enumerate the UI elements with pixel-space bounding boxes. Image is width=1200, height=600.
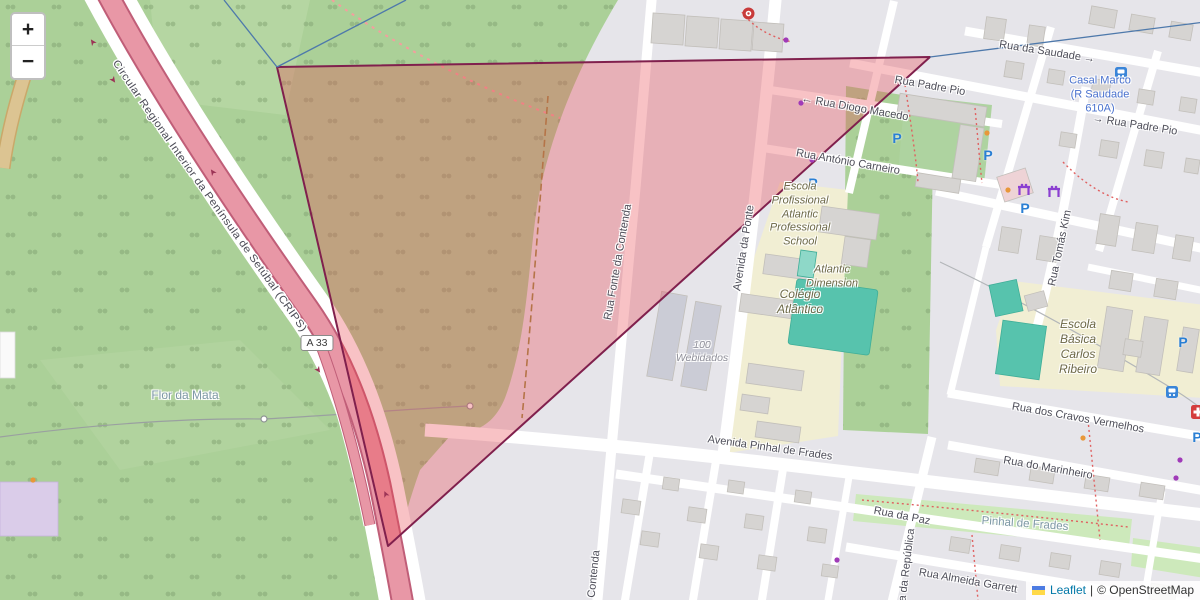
parking-icon: P — [808, 175, 817, 191]
attribution-bar: Leaflet | © OpenStreetMap — [1026, 581, 1200, 600]
parking-icon: P — [1192, 429, 1200, 445]
zoom-control: + − — [10, 12, 46, 80]
parking-icon: P — [892, 130, 901, 146]
attribution-separator: | — [1090, 583, 1093, 597]
parking-icon: P — [983, 147, 992, 163]
leaflet-map[interactable]: Circular Regional Interior da Península … — [0, 0, 1200, 600]
map-base-art: Circular Regional Interior da Península … — [0, 0, 1200, 600]
zoom-in-button[interactable]: + — [12, 14, 44, 46]
parking-icon: P — [1178, 334, 1187, 350]
ukraine-flag-icon — [1032, 586, 1045, 595]
leaflet-link[interactable]: Leaflet — [1050, 583, 1086, 597]
zoom-out-button[interactable]: − — [12, 46, 44, 78]
road-shield-a33: A 33 — [300, 335, 333, 351]
parking-icon: P — [1020, 200, 1029, 216]
openstreetmap-link[interactable]: © OpenStreetMap — [1097, 583, 1194, 597]
